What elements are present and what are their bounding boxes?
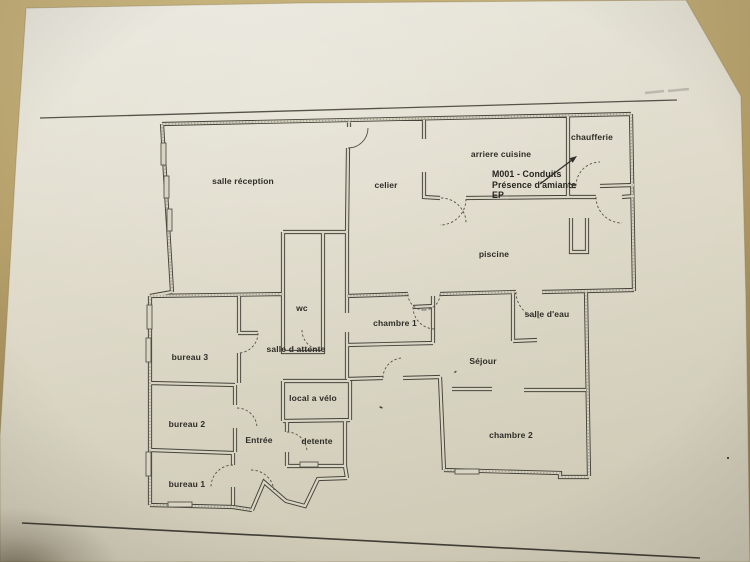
photo-vignette (0, 0, 750, 562)
floor-plan-photo-canvas: salle réception celier arriere cuisine c… (0, 0, 750, 562)
photo-of-floor-plan: salle réception celier arriere cuisine c… (0, 0, 750, 562)
